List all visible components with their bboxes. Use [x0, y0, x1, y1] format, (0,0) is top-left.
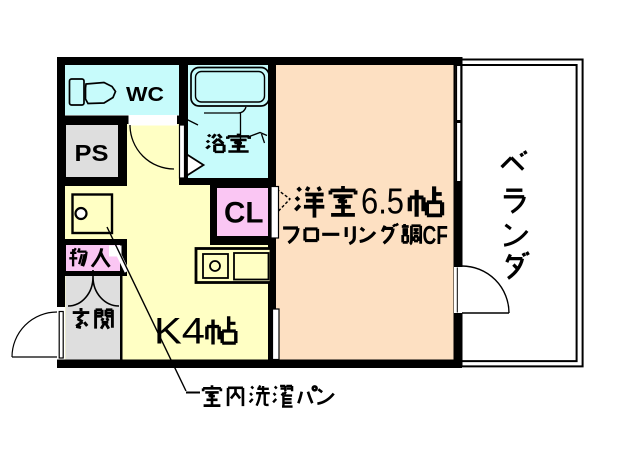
- svg-text:6.5: 6.5: [361, 181, 404, 222]
- svg-text:CF: CF: [423, 220, 449, 250]
- svg-text:CL: CL: [224, 197, 264, 230]
- svg-text:PS: PS: [75, 140, 109, 166]
- svg-text:K4: K4: [154, 311, 205, 352]
- svg-text:WC: WC: [126, 84, 164, 106]
